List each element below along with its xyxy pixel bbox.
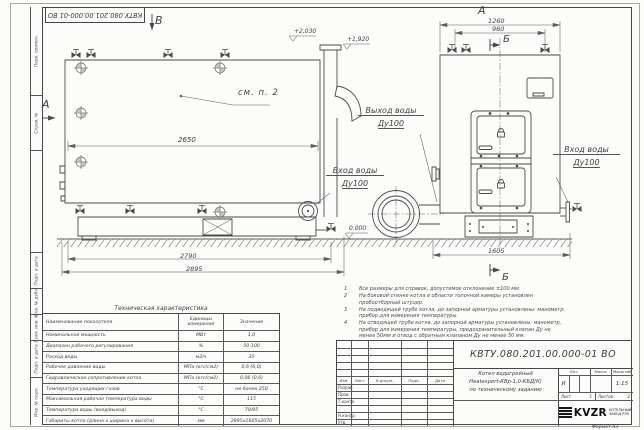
col-header: Наименование показателя: [43, 314, 179, 330]
dim-2650: 2650: [178, 136, 196, 144]
strip-label: Подп. и дата: [35, 256, 40, 285]
elev-2030: +2,030: [294, 28, 316, 35]
dim-2895: 2895: [186, 265, 203, 273]
cell-name: Диапазон рабочего регулирования: [43, 342, 179, 352]
note-item: 3На подводящей трубе котла, до запорной …: [344, 307, 568, 320]
stamp-description: Котел водогрейный Heatexpert-КВр-1,0-КБД…: [453, 370, 558, 400]
strip-label: Перв. примен.: [35, 35, 40, 67]
dn100-text: Ду100: [342, 179, 368, 189]
company-logo: KVZR КОТЕЛЬНЫЙ ЗАВОД РЭП: [558, 400, 632, 425]
table-row: Температура уходящих газов°Сне более 250: [43, 383, 279, 394]
elev-0000: 0.000: [349, 225, 366, 232]
cell-unit: мм: [179, 416, 224, 426]
strip-cell: Подп. и дата: [31, 253, 43, 289]
cell-value: 1,0: [224, 331, 279, 341]
cell-name: Рабочее давление воды: [43, 363, 179, 373]
table-row: Габариты котла (длина х ширина х высота)…: [43, 415, 279, 426]
cell-unit: МПа (кгс/см2): [179, 374, 224, 384]
stamp-role-nkontr: Н.контр.: [338, 412, 368, 419]
sheet-cell: Лист1: [558, 392, 595, 400]
product-note: по техническому заданию: [453, 386, 558, 394]
note-text: На боковой стенке котла в области топочн…: [359, 293, 568, 306]
sheets-value: 2: [627, 394, 630, 399]
note-number: 2: [344, 293, 359, 306]
sheets-label: Листов: [598, 394, 613, 399]
cell-unit: %: [179, 342, 224, 352]
strip-cell: [31, 151, 43, 253]
col-header: Значение: [224, 314, 279, 330]
front-a-label: А: [478, 4, 486, 17]
dim-1260: 1260: [488, 17, 505, 25]
col-header: Единицы измерения: [179, 314, 224, 330]
table-row: Расход водым3/ч35: [43, 351, 279, 362]
strip-label: Подп. и дата: [35, 344, 40, 373]
water-inlet-left-label: Вход воды: [326, 166, 384, 176]
see-note-label: см. п. 2: [238, 88, 279, 98]
lit-header: Лит.: [558, 368, 590, 375]
doc-number-rotated: КВТУ.080.201.00.000-01 ВО: [46, 8, 144, 22]
kvzr-logo-text: KVZR: [574, 407, 607, 419]
note-number: 1: [344, 286, 359, 292]
note-number: 3: [344, 307, 359, 320]
cell-unit: °С: [179, 395, 224, 405]
cell-name: Максимальная рабочая температура воды: [43, 395, 179, 405]
cell-value: 50-100: [224, 342, 279, 352]
title-block: Изм. Лист N докум. Подп. Дата Разраб. Пр…: [336, 340, 632, 425]
elev-1920: +1,920: [347, 36, 369, 43]
water-inlet-right-dn: Ду100: [553, 158, 620, 167]
cell-value: не более 250: [224, 384, 279, 394]
table-row: Температура воды (вход/выход)°С70/95: [43, 405, 279, 416]
cell-name: Номинальная мощность: [43, 331, 179, 341]
strip-label: Инв. № дубл.: [35, 287, 40, 316]
cell-value: 2895х1605х2070: [224, 416, 279, 426]
cell-name: Температура воды (вход/выход): [43, 406, 179, 416]
lit-value: И: [558, 375, 569, 392]
stamp-role-razrab: Разраб.: [338, 384, 368, 391]
water-inlet-right-label: Вход воды: [553, 145, 620, 155]
doc-number-box: КВТУ.080.201.00.000-01 ВО: [45, 7, 145, 23]
view-a-label: А: [42, 98, 50, 111]
cell-unit: °С: [179, 384, 224, 394]
view-b-label: В: [155, 14, 163, 27]
dn100-text: Ду100: [573, 158, 599, 168]
table-row: Диапазон рабочего регулирования%50-100: [43, 341, 279, 352]
table-row: Номинальная мощностьМВт1,0: [43, 330, 279, 341]
cell-unit: °С: [179, 406, 224, 416]
dn100-text: Ду100: [378, 119, 404, 129]
stamp-role-prov: Пров.: [338, 391, 368, 398]
cell-unit: м3/ч: [179, 352, 224, 362]
strip-label: Взам. инв. №: [35, 313, 40, 342]
sheet-label: Лист: [561, 394, 571, 399]
product-model: Heatexpert-КВр-1,0-КБД(К): [453, 378, 558, 386]
stamp-col-izm: Изм.: [337, 376, 351, 384]
cell-name: Гидравлическое сопротивление котла: [43, 374, 179, 384]
mass-header: Масса: [590, 368, 611, 375]
table-row: Гидравлическое сопротивление котлаМПа (к…: [43, 373, 279, 384]
logo-caption-line2: ЗАВОД РЭП: [609, 413, 631, 417]
format-label: Формат А3: [592, 425, 618, 430]
stamp-role-utv: Утв.: [338, 419, 368, 426]
note-item: 4На отводящей трубе котла, до запорной а…: [344, 320, 568, 339]
stamp-role-tkontr: Т.контр.: [338, 398, 368, 405]
water-outlet-label: Выход воды: [358, 106, 424, 116]
stamp-doc-number: КВТУ.080.201.00.000-01 ВО: [453, 341, 633, 368]
tech-table-header: Наименование показателя Единицы измерени…: [43, 314, 279, 330]
cell-value: 0,6 (6,0): [224, 363, 279, 373]
tech-table-title: Техническая характеристика: [42, 305, 280, 312]
drawing-sheet: Перв. примен. Справ. № Подп. и дата Инв.…: [0, 0, 644, 430]
stamp-col-list: Лист: [351, 376, 368, 384]
kvzr-logo-icon: [559, 407, 572, 418]
note-item: 2На боковой стенке котла в области топоч…: [344, 293, 568, 306]
gost-left-strip: Перв. примен. Справ. № Подп. и дата Инв.…: [30, 7, 42, 425]
water-outlet-dn: Ду100: [358, 119, 424, 128]
sheets-cell: Листов2: [595, 392, 633, 400]
product-name: Котел водогрейный: [453, 370, 558, 378]
water-inlet-left-dn: Ду100: [326, 179, 384, 188]
stamp-col-date: Дата: [427, 376, 453, 384]
cell-value: 115: [224, 395, 279, 405]
stamp-col-doc: N докум.: [368, 376, 401, 384]
cell-name: Температура уходящих газов: [43, 384, 179, 394]
note-text: На подводящей трубе котла, до запорной а…: [359, 307, 568, 320]
cell-value: 70/95: [224, 406, 279, 416]
notes-block: 1Все размеры для справок, допустимое отк…: [344, 286, 568, 340]
cell-name: Расход воды: [43, 352, 179, 362]
table-row: Максимальная рабочая температура воды°С1…: [43, 394, 279, 405]
scale-value: 1:15: [611, 375, 633, 392]
cell-value: 0,06 (0,6): [224, 374, 279, 384]
scale-header: Масштаб: [611, 368, 633, 375]
dim-1605: 1605: [488, 247, 505, 255]
note-number: 4: [344, 320, 359, 339]
dim-960: 960: [492, 25, 504, 33]
cell-unit: МВт: [179, 331, 224, 341]
table-row: Рабочее давление водыМПа (кгс/см2)0,6 (6…: [43, 362, 279, 373]
dim-2790: 2790: [180, 252, 197, 260]
note-text: На отводящей трубе котла, до запорной ар…: [359, 320, 568, 339]
section-b-bottom: Б: [502, 272, 509, 283]
stamp-col-sign: Подп.: [401, 376, 427, 384]
cell-value: 35: [224, 352, 279, 362]
note-item: 1Все размеры для справок, допустимое отк…: [344, 286, 568, 292]
strip-cell: Перв. примен.: [31, 7, 43, 96]
note-text: Все размеры для справок, допустимое откл…: [359, 286, 568, 292]
sheet-value: 1: [589, 394, 592, 399]
strip-label: Справ. №: [35, 113, 40, 134]
tech-table: Наименование показателя Единицы измерени…: [42, 313, 280, 425]
section-b-top: Б: [503, 34, 510, 45]
cell-unit: МПа (кгс/см2): [179, 363, 224, 373]
strip-label: Инв. № подл.: [35, 387, 40, 417]
kvzr-logo-caption: КОТЕЛЬНЫЙ ЗАВОД РЭП: [609, 409, 631, 417]
cell-name: Габариты котла (длина х ширина х высота): [43, 416, 179, 426]
